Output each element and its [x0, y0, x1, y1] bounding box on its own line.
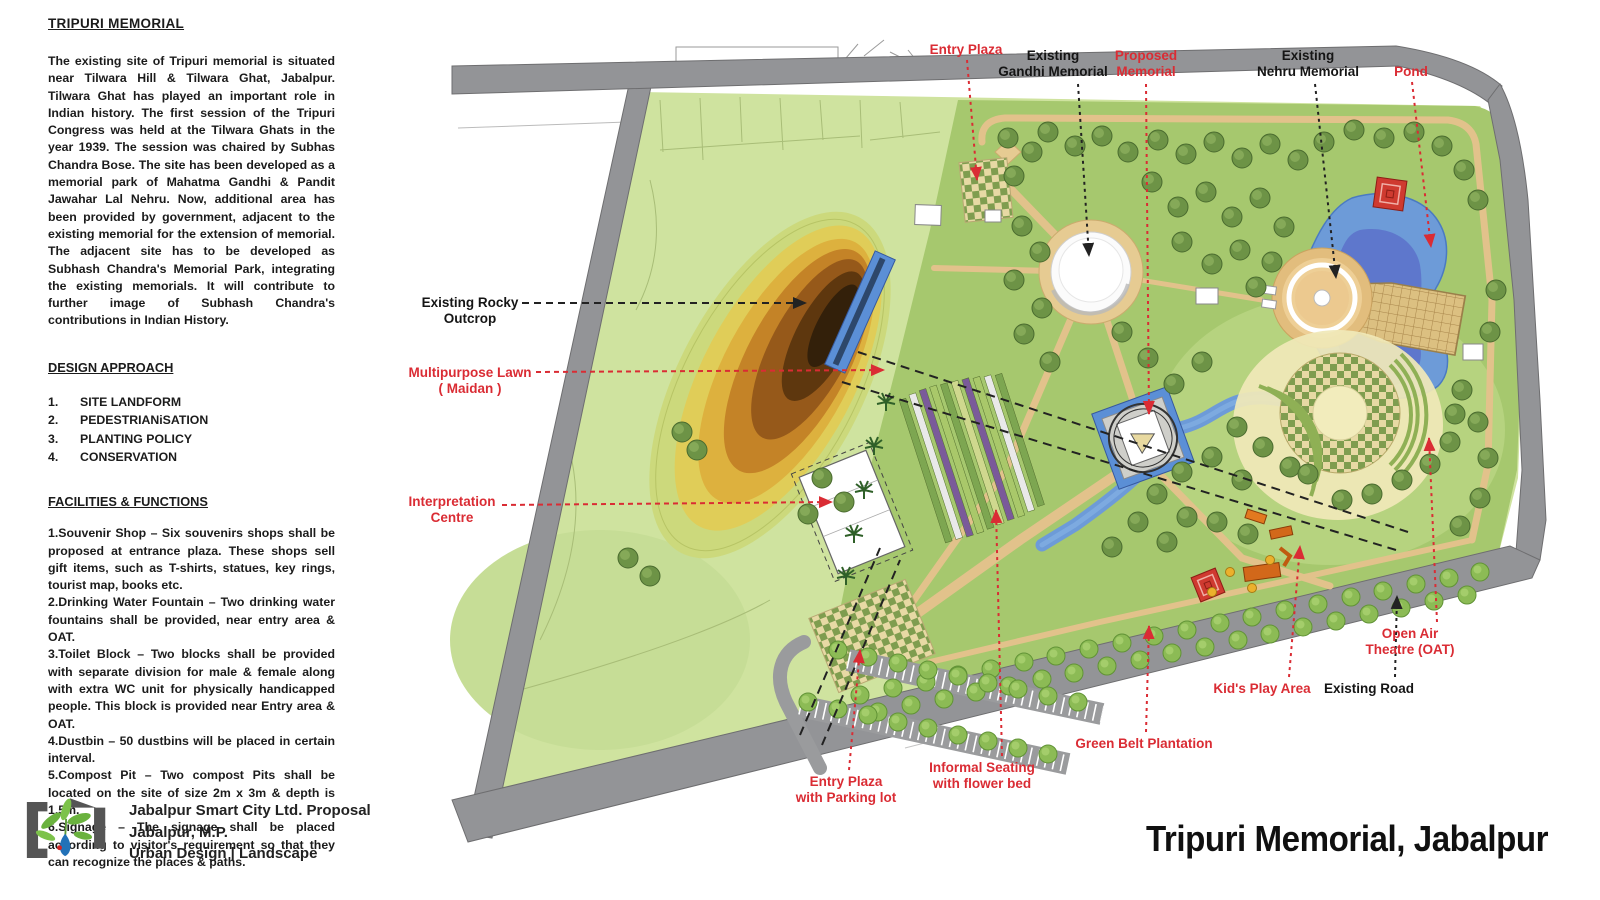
footer-org: Jabalpur Smart City Ltd. Proposal [129, 800, 371, 822]
design-approach-list: SITE LANDFORM PEDESTRIANiSATION PLANTING… [48, 395, 335, 465]
intro-paragraph: The existing site of Tripuri memorial is… [48, 53, 335, 330]
water-drop-icon [57, 834, 70, 856]
footer: Jabalpur Smart City Ltd. Proposal Jabalp… [25, 790, 371, 870]
red-pavilion-north [1373, 177, 1407, 211]
label-rocky-outcrop: Existing RockyOutcrop [422, 295, 519, 327]
label-nehru-memorial: ExistingNehru Memorial [1257, 48, 1359, 80]
gandhi-memorial-dome [1039, 220, 1143, 324]
smart-city-logo [25, 790, 109, 870]
label-open-air-theatre: Open AirTheatre (OAT) [1365, 626, 1454, 658]
design-approach-item: SITE LANDFORM [48, 395, 335, 409]
label-multipurpose-lawn: Multipurpose Lawn( Maidan ) [409, 365, 532, 397]
label-entry-plaza-bottom: Entry Plazawith Parking lot [796, 774, 897, 806]
design-approach-item: PLANTING POLICY [48, 432, 335, 446]
footer-text: Jabalpur Smart City Ltd. Proposal Jabalp… [129, 800, 371, 865]
facility-item: 2.Drinking Water Fountain – Two drinking… [48, 594, 335, 646]
label-proposed-memorial: ProposedMemorial [1115, 48, 1177, 80]
facility-item: 1.Souvenir Shop – Six souvenirs shops sh… [48, 525, 335, 594]
label-gandhi-memorial: ExistingGandhi Memorial [998, 48, 1108, 80]
label-existing-road: Existing Road [1324, 681, 1414, 697]
facility-item: 4.Dustbin – 50 dustbins will be placed i… [48, 733, 335, 768]
label-pond: Pond [1394, 64, 1428, 80]
facilities-heading: FACILITIES & FUNCTIONS [48, 494, 335, 509]
facility-item: 3.Toilet Block – Two blocks shall be pro… [48, 646, 335, 732]
label-green-belt: Green Belt Plantation [1075, 736, 1212, 752]
footer-dept: Urban Design | Landscape [129, 843, 371, 865]
panel-title: TRIPURI MEMORIAL [48, 16, 335, 31]
label-informal-seating: Informal Seatingwith flower bed [929, 760, 1035, 792]
footer-city: Jabalpur, M.P. [129, 822, 371, 844]
design-approach-item: PEDESTRIANiSATION [48, 413, 335, 427]
info-panel: TRIPURI MEMORIAL The existing site of Tr… [48, 16, 335, 871]
label-interpretation-centre: InterpretationCentre [408, 494, 495, 526]
design-approach-heading: DESIGN APPROACH [48, 360, 335, 375]
label-entry-plaza-top: Entry Plaza [930, 42, 1003, 58]
label-kids-play-area: Kid's Play Area [1213, 681, 1310, 697]
design-approach-item: CONSERVATION [48, 450, 335, 464]
sheet-title: Tripuri Memorial, Jabalpur [1146, 818, 1548, 860]
